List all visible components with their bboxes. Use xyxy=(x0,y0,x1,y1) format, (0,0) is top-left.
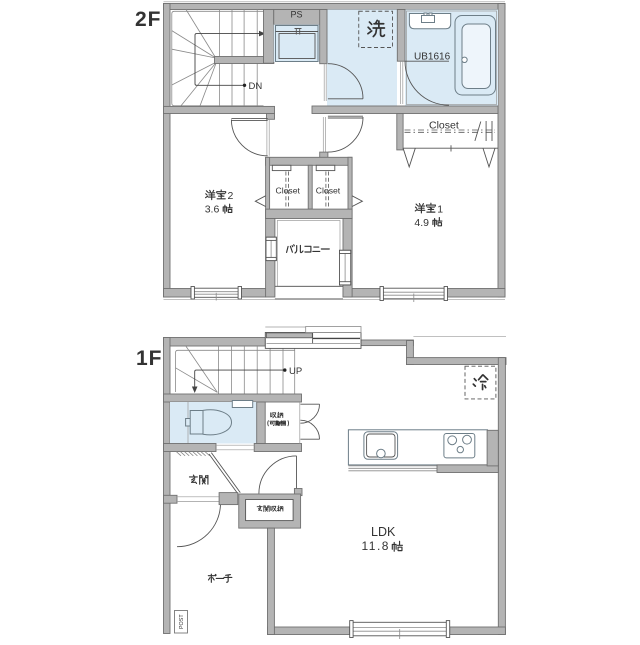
svg-text:1: 1 xyxy=(437,203,443,215)
svg-text:2F: 2F xyxy=(135,8,162,31)
svg-text:1F: 1F xyxy=(136,347,163,370)
svg-text:Closet: Closet xyxy=(429,120,459,132)
svg-text:Closet: Closet xyxy=(276,186,301,196)
svg-text:LDK: LDK xyxy=(371,525,396,539)
svg-text:2: 2 xyxy=(228,190,234,202)
svg-text:DN: DN xyxy=(249,81,263,92)
svg-text:UB1616: UB1616 xyxy=(414,52,451,63)
svg-text:POST: POST xyxy=(179,614,185,629)
svg-text:3.6: 3.6 xyxy=(205,204,220,216)
svg-text:11.8: 11.8 xyxy=(362,539,390,553)
svg-text:Closet: Closet xyxy=(316,186,341,196)
svg-text:UP: UP xyxy=(289,366,302,377)
svg-text:4.9: 4.9 xyxy=(414,217,429,229)
svg-text:PS: PS xyxy=(291,10,303,20)
